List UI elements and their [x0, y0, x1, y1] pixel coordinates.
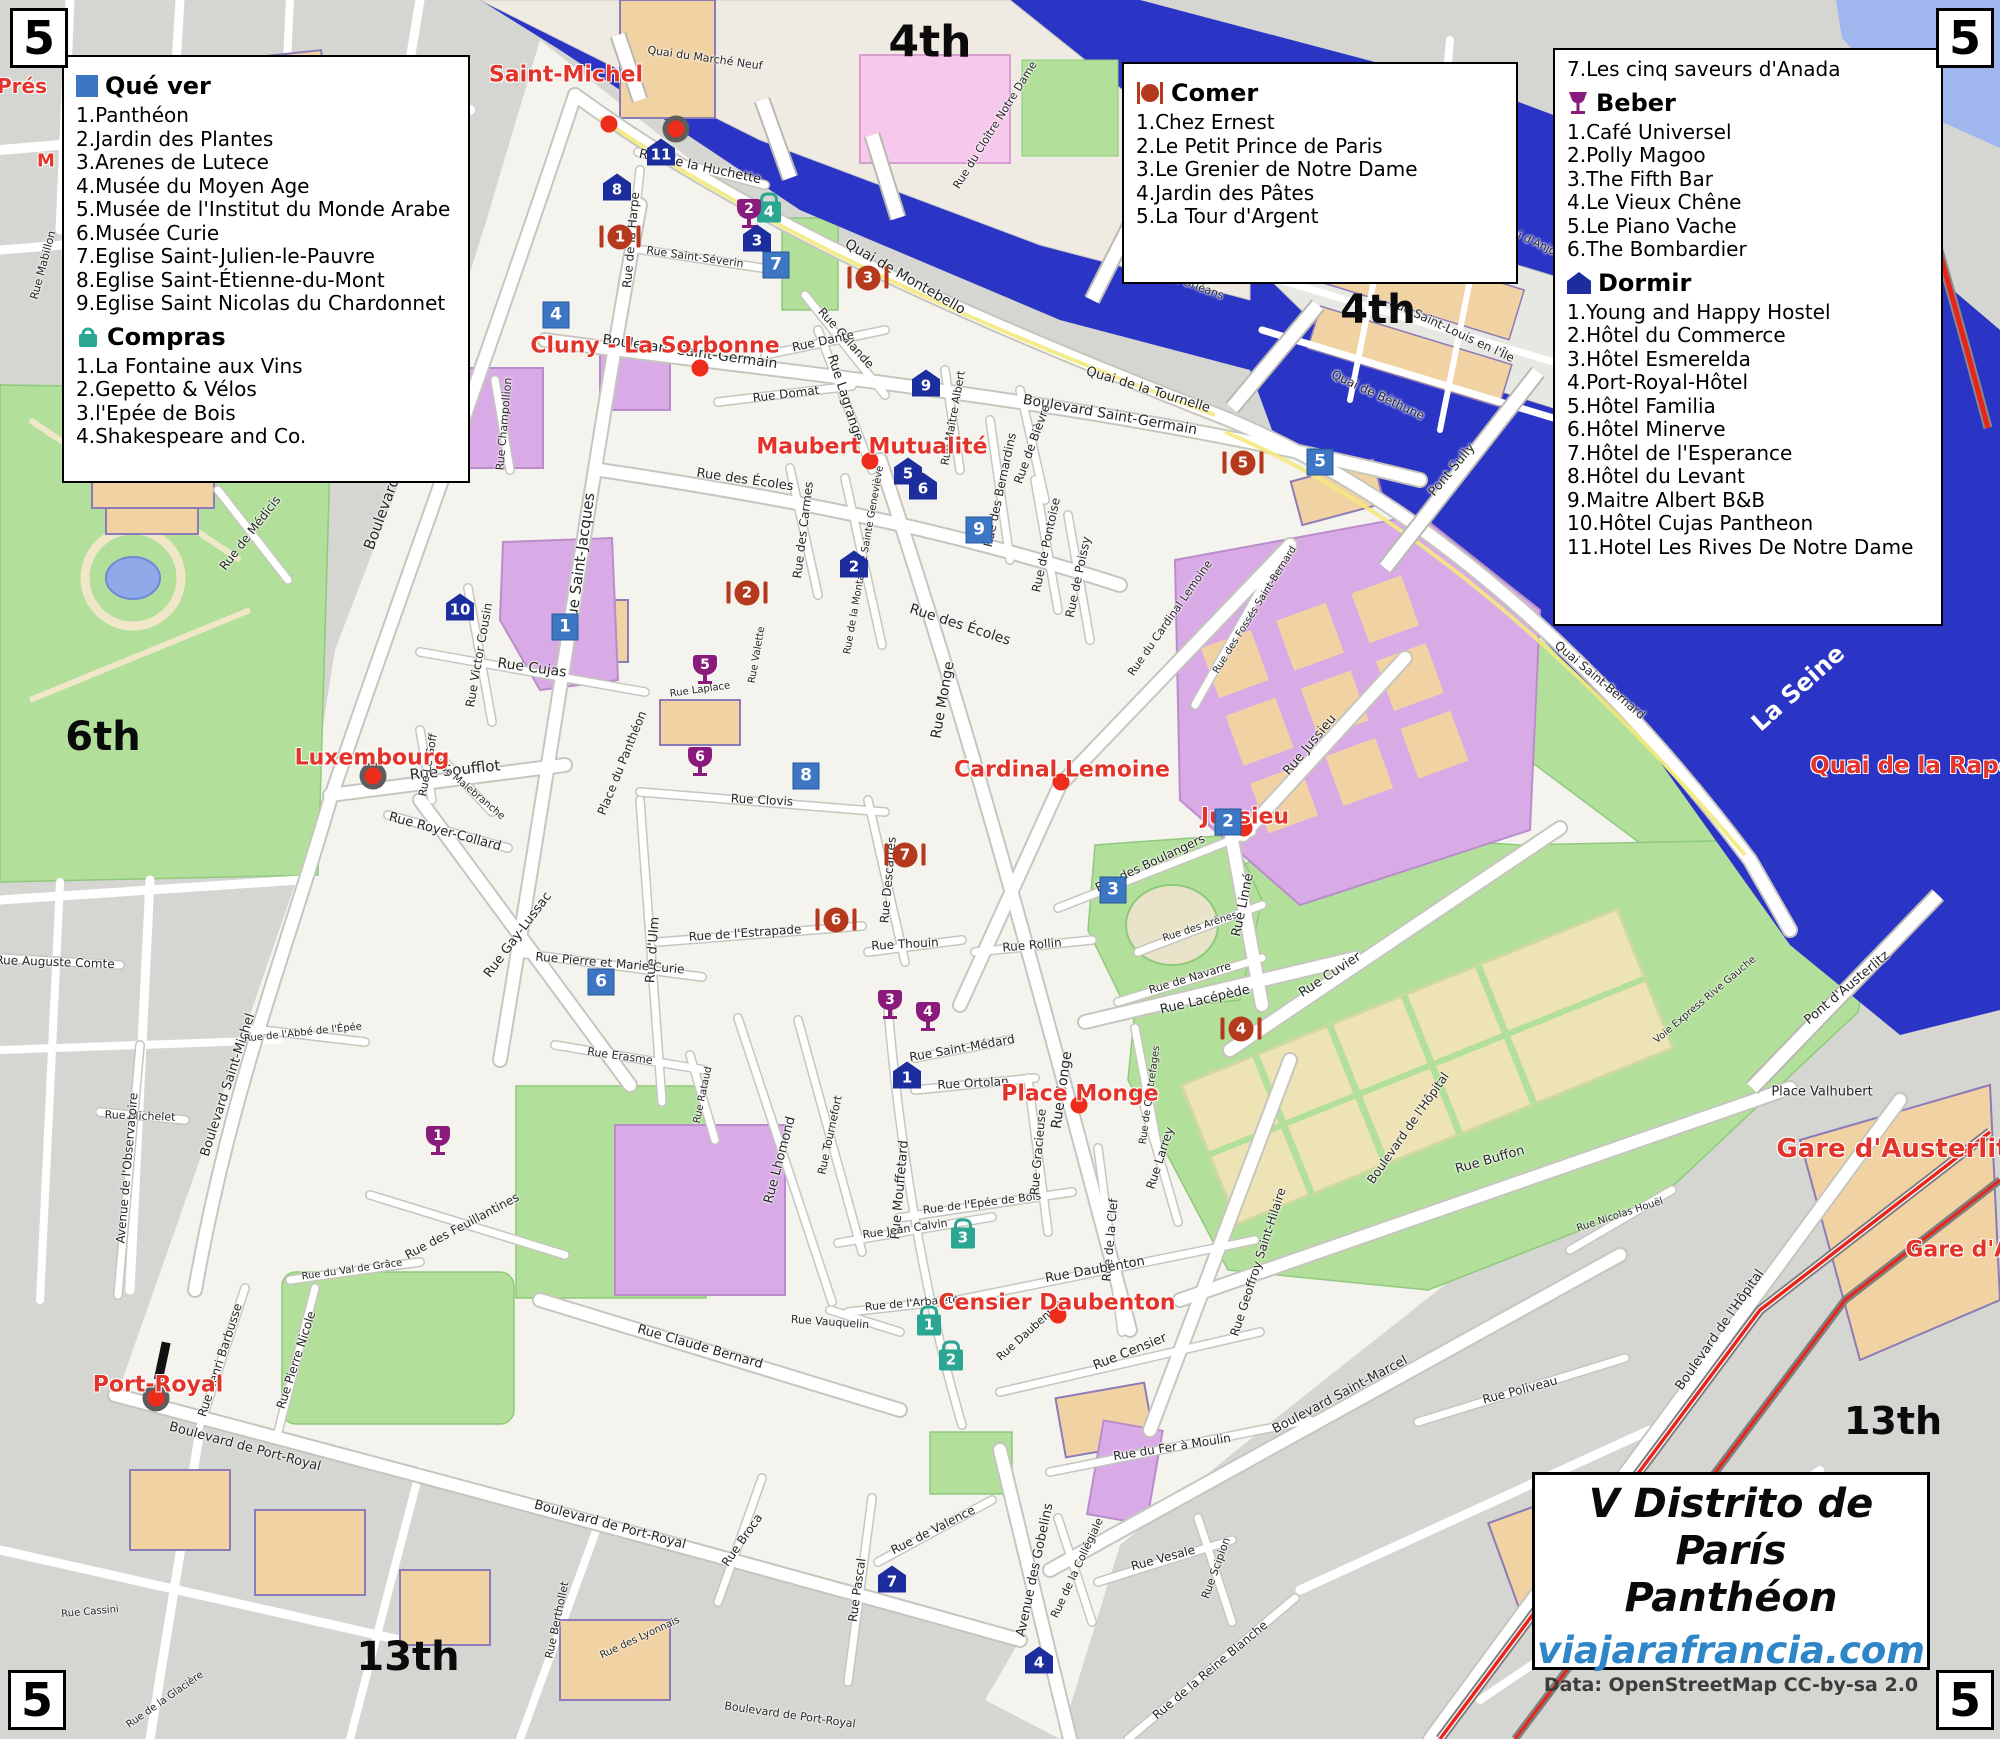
legend-item: 3.The Fifth Bar [1567, 168, 1929, 192]
map-title-box: V Distrito de París Panthéon viajarafran… [1532, 1472, 1930, 1670]
beber-list: 1.Café Universel2.Polly Magoo3.The Fifth… [1567, 121, 1929, 262]
legend-item: 2.Le Petit Prince de Paris [1136, 135, 1504, 159]
marker-drink-1: 1 [426, 1126, 450, 1146]
metro-station-label: Port-Royal [93, 1373, 224, 1398]
legend-item: 1.Chez Ernest [1136, 111, 1504, 135]
district-label: 4th [1340, 287, 1415, 333]
legend-item: 1.Panthéon [76, 104, 456, 128]
legend-item: 4.Jardin des Pâtes [1136, 182, 1504, 206]
metro-station-label: Gare d'Austerlitz [1905, 1238, 2000, 1263]
marker-shop-2: 2 [939, 1350, 963, 1371]
legend-item: 3.Arenes de Lutece [76, 151, 456, 175]
marker-sight-1: 1 [552, 614, 579, 641]
legend-item: 1.La Fontaine aux Vins [76, 355, 456, 379]
metro-dot [601, 116, 618, 133]
metro-station-label: Quai de la Rapée [1810, 753, 2000, 779]
comer-continued-list: 7.Les cinq saveurs d'Anada [1567, 58, 1929, 82]
legend-item: 4.Musée du Moyen Age [76, 175, 456, 199]
legend-item: 10.Hôtel Cujas Pantheon [1567, 512, 1929, 536]
legend-item: 4.Port-Royal-Hôtel [1567, 371, 1929, 395]
marker-sight-7: 7 [763, 252, 790, 279]
marker-sight-3: 3 [1100, 877, 1127, 904]
legend-item: 4.Le Vieux Chêne [1567, 191, 1929, 215]
marker-food-2: 2 [735, 581, 760, 606]
restaurant-icon [1136, 81, 1164, 105]
legend-title-comer: Comer [1171, 79, 1258, 107]
map-title-line2: Panthéon [1535, 1575, 1927, 1622]
legend-item: 1.Young and Happy Hostel [1567, 301, 1929, 325]
street-label: Place Valhubert [1771, 1085, 1872, 1100]
metro-station-label: Cardinal Lemoine [954, 758, 1170, 783]
legend-title-beber: Beber [1596, 89, 1676, 117]
metro-station-label: Cluny - La Sorbonne [530, 334, 779, 359]
legend-item: 5.La Tour d'Argent [1136, 205, 1504, 229]
legend-item: 3.Hôtel Esmerelda [1567, 348, 1929, 372]
marker-drink-4: 4 [916, 1002, 940, 1022]
map-title-line1: V Distrito de París [1535, 1481, 1927, 1575]
legend-item: 8.Eglise Saint-Étienne-du-Mont [76, 269, 456, 293]
legend-item: 5.Le Piano Vache [1567, 215, 1929, 239]
marker-sight-5: 5 [1307, 449, 1334, 476]
legend-item: 11.Hotel Les Rives De Notre Dame [1567, 536, 1929, 560]
legend-item: 6.Musée Curie [76, 222, 456, 246]
que-ver-list: 1.Panthéon2.Jardin des Plantes3.Arenes d… [76, 104, 456, 316]
marker-drink-2: 2 [737, 199, 761, 219]
marker-sight-2: 2 [1215, 809, 1242, 836]
legend-item: 5.Musée de l'Institut du Monde Arabe [76, 198, 456, 222]
legend-title-que-ver: Qué ver [105, 72, 211, 100]
legend-item: 3.l'Epée de Bois [76, 402, 456, 426]
legend-header-comer: Comer [1136, 79, 1504, 107]
marker-shop-1: 1 [917, 1315, 941, 1336]
metro-dot [668, 121, 685, 138]
legend-header-compras: Compras [76, 323, 456, 351]
legend-item: 5.Hôtel Familia [1567, 395, 1929, 419]
marker-shop-3: 3 [951, 1228, 975, 1249]
marker-food-6: 6 [824, 908, 849, 933]
street-label: Rue Michelet [104, 1108, 175, 1123]
luxembourg-pond [106, 557, 160, 599]
metro-dot [692, 360, 709, 377]
marker-sight-8: 8 [793, 763, 820, 790]
legend-item: 2.Gepetto & Vélos [76, 378, 456, 402]
legend-title-dormir: Dormir [1598, 269, 1691, 297]
legend-title-compras: Compras [107, 323, 226, 351]
wine-glass-icon [1567, 91, 1589, 115]
district-label: 13th [356, 1634, 459, 1680]
sight-square-icon [76, 75, 98, 97]
legend-item: 7.Les cinq saveurs d'Anada [1567, 58, 1929, 82]
legend-eating: Comer 1.Chez Ernest2.Le Petit Prince de … [1122, 62, 1518, 284]
marker-food-5: 5 [1231, 451, 1256, 476]
marker-sight-9: 9 [966, 517, 993, 544]
website-text: viajarafrancia.com [1535, 1628, 1927, 1674]
corner-page-number-bottom-right: 5 [1936, 1670, 1994, 1730]
district-label: 13th [1844, 1399, 1942, 1443]
shopping-bag-icon [76, 325, 100, 349]
legend-sights-shopping: Qué ver 1.Panthéon2.Jardin des Plantes3.… [62, 55, 470, 483]
marker-drink-3: 3 [878, 990, 902, 1010]
legend-drinking-sleeping: 7.Les cinq saveurs d'Anada Beber 1.Café … [1553, 48, 1943, 626]
legend-header-que-ver: Qué ver [76, 72, 456, 100]
legend-item: 9.Eglise Saint Nicolas du Chardonnet [76, 292, 456, 316]
compras-list: 1.La Fontaine aux Vins2.Gepetto & Vélos3… [76, 355, 456, 449]
metro-station-label: Place Monge [1001, 1082, 1158, 1107]
legend-item: 3.Le Grenier de Notre Dame [1136, 158, 1504, 182]
map-canvas: La SeineBoulevard Saint-MichelBoulevard … [0, 0, 2000, 1739]
legend-item: 4.Shakespeare and Co. [76, 425, 456, 449]
district-label: 6th [65, 714, 140, 760]
district-label: 4th [889, 17, 972, 68]
legend-item: 6.Hôtel Minerve [1567, 418, 1929, 442]
legend-item: 1.Café Universel [1567, 121, 1929, 145]
metro-station-label: Saint-Michel [489, 63, 643, 88]
legend-header-dormir: Dormir [1567, 269, 1929, 297]
marker-sight-4: 4 [543, 302, 570, 329]
marker-drink-5: 5 [693, 655, 717, 675]
legend-item: 2.Jardin des Plantes [76, 128, 456, 152]
metro-station-label: Prés [0, 74, 47, 98]
marker-food-1: 1 [608, 225, 633, 250]
marker-food-4: 4 [1229, 1017, 1254, 1042]
dormir-list: 1.Young and Happy Hostel2.Hôtel du Comme… [1567, 301, 1929, 560]
data-credit: Data: OpenStreetMap CC-by-sa 2.0 [1535, 1674, 1927, 1696]
corner-page-number-top-left: 5 [10, 8, 68, 68]
marker-sight-6: 6 [588, 969, 615, 996]
legend-item: 7.Eglise Saint-Julien-le-Pauvre [76, 245, 456, 269]
marker-food-3: 3 [856, 266, 881, 291]
legend-item: 7.Hôtel de l'Esperance [1567, 442, 1929, 466]
metro-station-label: Maubert Mutualité [756, 435, 987, 460]
corner-page-number-bottom-left: 5 [8, 1670, 66, 1730]
legend-item: 2.Polly Magoo [1567, 144, 1929, 168]
metro-station-label: Censier Daubenton [938, 1291, 1175, 1316]
legend-item: 2.Hôtel du Commerce [1567, 324, 1929, 348]
comer-list: 1.Chez Ernest2.Le Petit Prince de Paris3… [1136, 111, 1504, 229]
metro-station-label: Gare d'Austerlitz [1776, 1134, 2000, 1164]
metro-station-label: M [37, 151, 55, 172]
metro-station-label: Luxembourg [295, 746, 450, 771]
legend-header-beber: Beber [1567, 89, 1929, 117]
house-icon [1567, 272, 1591, 294]
legend-item: 8.Hôtel du Levant [1567, 465, 1929, 489]
legend-item: 6.The Bombardier [1567, 238, 1929, 262]
marker-food-7: 7 [893, 843, 918, 868]
legend-item: 9.Maitre Albert B&B [1567, 489, 1929, 513]
marker-drink-6: 6 [688, 747, 712, 767]
corner-page-number-top-right: 5 [1936, 8, 1994, 68]
